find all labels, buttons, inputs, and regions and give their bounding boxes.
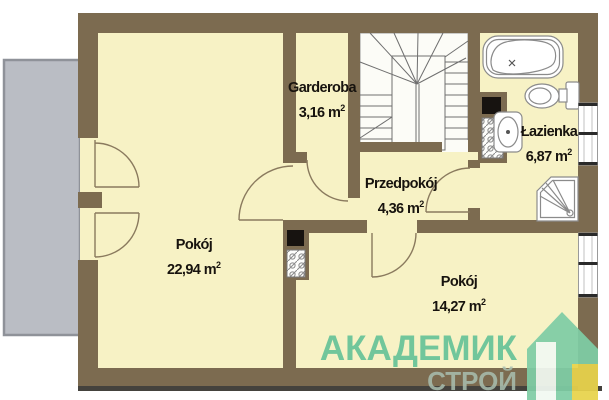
wall-left-upper: [78, 13, 98, 138]
flue-black-square: [482, 97, 501, 114]
flue-black-square: [287, 230, 304, 246]
flue-hatch: [287, 250, 305, 277]
area-unit: m2: [407, 201, 424, 217]
room-name: Pokój: [167, 235, 221, 255]
area-unit: m2: [328, 105, 345, 121]
bathtub: [483, 36, 563, 78]
area-value: 4,36: [378, 201, 404, 217]
room-name: Łazienka: [521, 122, 577, 142]
area-unit: m2: [469, 299, 486, 315]
area-value: 14,27: [432, 299, 465, 315]
room-name: Pokój: [432, 272, 486, 292]
area-value: 3,16: [299, 105, 325, 121]
window-room: [579, 233, 598, 297]
chimney-flue-room: [283, 226, 309, 280]
ground-shadow-line: [78, 386, 602, 391]
watermark-text-secondary: СТРОЙ: [427, 366, 517, 397]
floor-plan-drawing: [0, 0, 609, 400]
wall-stairs-south: [348, 142, 442, 152]
wall-right-upper: [578, 13, 598, 103]
wall-left-pier: [78, 192, 102, 208]
balcony: [4, 60, 80, 335]
floor-plan: Pokój 22,94 m2 Garderoba 3,16 m2 Przedpo…: [0, 0, 609, 400]
room-area: 3,16 m2: [288, 98, 356, 123]
room-label-pokoj-2: Pokój 14,27 m2: [432, 272, 486, 317]
area-value: 6,87: [526, 149, 552, 165]
wall-top: [78, 13, 598, 33]
area-unit: m2: [555, 149, 572, 165]
room-label-pokoj-1: Pokój 22,94 m2: [167, 235, 221, 280]
wall-stub-bath-south: [468, 208, 480, 220]
room-area: 22,94 m2: [167, 255, 221, 280]
washbasin: [494, 112, 522, 152]
watermark-text-primary: АКАДЕМИК: [320, 329, 517, 369]
room-name: Garderoba: [288, 78, 356, 98]
room-label-lazienka: Łazienka 6,87 m2: [521, 122, 577, 167]
wall-bottom: [78, 368, 598, 386]
wall-przedpokoj-south-east: [417, 220, 598, 233]
area-unit: m2: [204, 262, 221, 278]
room-label-przedpokoj: Przedpokój 4,36 m2: [365, 174, 437, 219]
room-name: Przedpokój: [365, 174, 437, 194]
window-bathroom: [579, 103, 598, 165]
room-area: 6,87 m2: [521, 142, 577, 167]
wall-left-lower: [78, 260, 98, 372]
wall-stub-garderoba-door: [348, 152, 360, 198]
wall-nub: [283, 152, 307, 163]
stairs: [360, 33, 468, 152]
toilet: [525, 82, 579, 109]
room-label-garderoba: Garderoba 3,16 m2: [288, 78, 356, 123]
room-area: 4,36 m2: [365, 194, 437, 219]
area-value: 22,94: [167, 262, 200, 278]
room-area: 14,27 m2: [432, 292, 486, 317]
